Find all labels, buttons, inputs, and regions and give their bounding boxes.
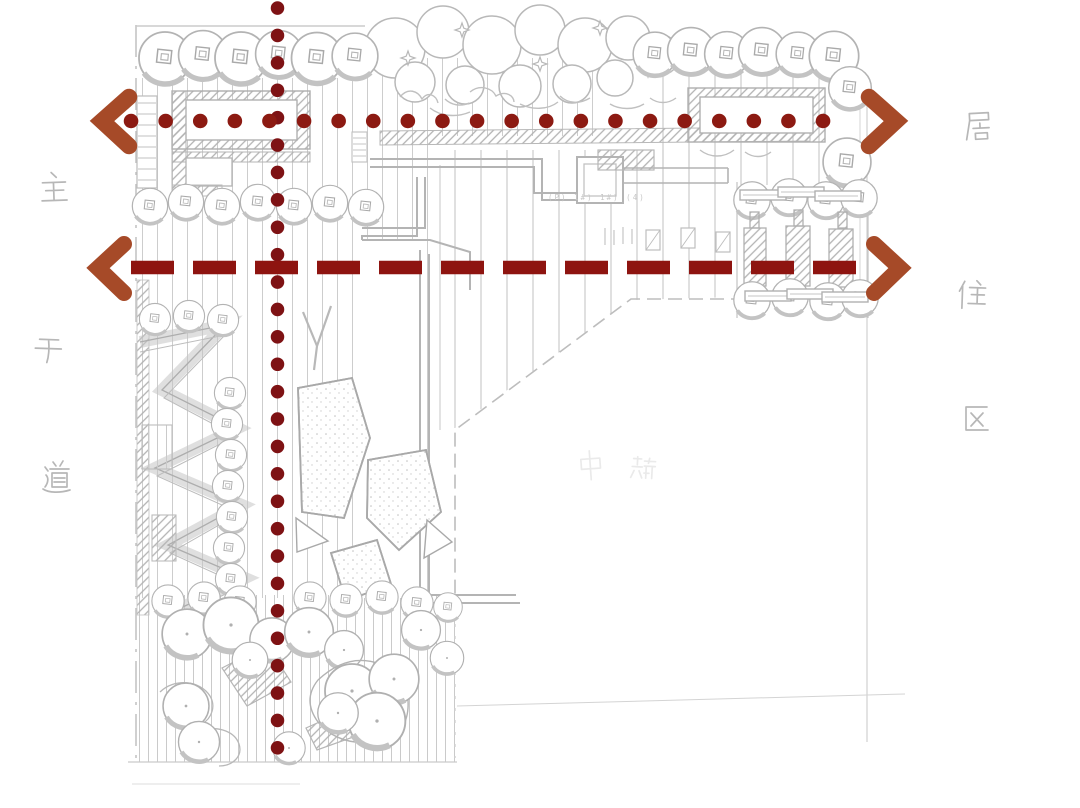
char-qu — [966, 407, 988, 430]
small-stairs — [352, 132, 367, 162]
door-shapes — [646, 228, 730, 252]
char-dao — [43, 461, 70, 492]
pencil-note: (P) 1#) 1#) (4) — [548, 193, 646, 202]
label-residential-district: 居住区 — [959, 113, 995, 430]
char-gan — [35, 339, 62, 363]
site-plan-canvas: (P) 1#) 1#) (4) 主干道 — [0, 0, 1080, 808]
arrow-right-icon — [869, 97, 896, 146]
arrow-left-icon — [98, 244, 124, 293]
stairs — [137, 96, 157, 188]
arrow-right-icon — [874, 244, 900, 293]
label-main-road: 主干道 — [35, 172, 70, 492]
label-center-faint: 中端 — [580, 450, 655, 480]
char-zhu2 — [959, 280, 986, 309]
char-duan — [631, 456, 656, 478]
tree-row-top-left — [139, 31, 378, 84]
